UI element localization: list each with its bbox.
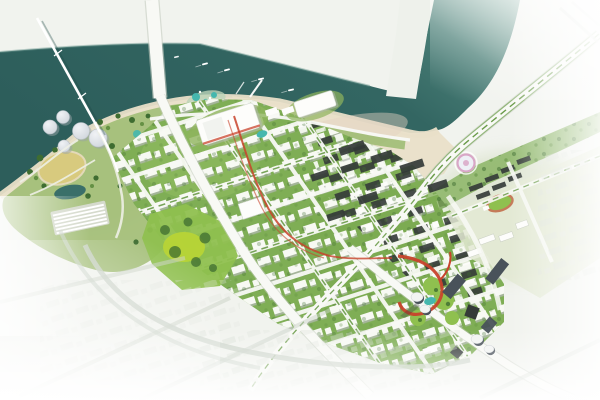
main-bridge-deck <box>152 0 160 98</box>
masterplan-canvas <box>0 0 600 400</box>
masterplan-rendering <box>0 0 600 400</box>
